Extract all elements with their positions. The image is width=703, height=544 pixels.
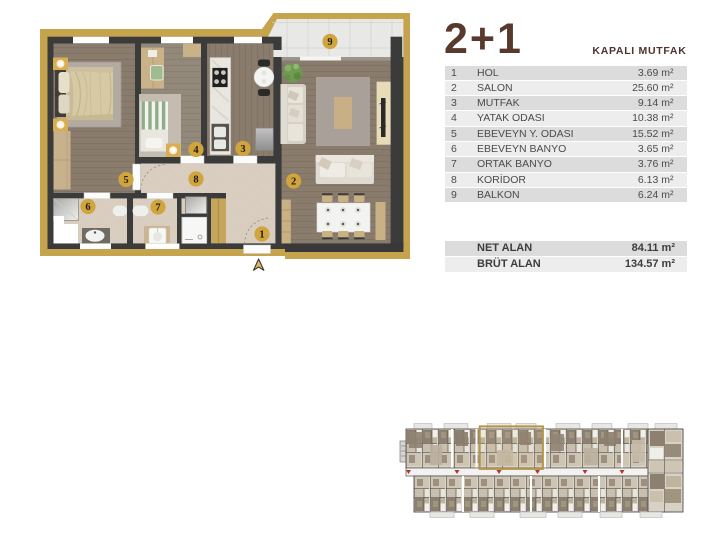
- svg-text:6: 6: [85, 202, 90, 213]
- svg-text:5: 5: [123, 175, 128, 186]
- svg-text:8: 8: [193, 175, 198, 186]
- svg-text:4: 4: [193, 145, 199, 156]
- svg-text:1: 1: [259, 230, 264, 241]
- svg-text:7: 7: [155, 203, 160, 214]
- svg-text:3: 3: [240, 144, 245, 155]
- svg-text:9: 9: [327, 37, 332, 48]
- svg-text:2: 2: [291, 177, 296, 188]
